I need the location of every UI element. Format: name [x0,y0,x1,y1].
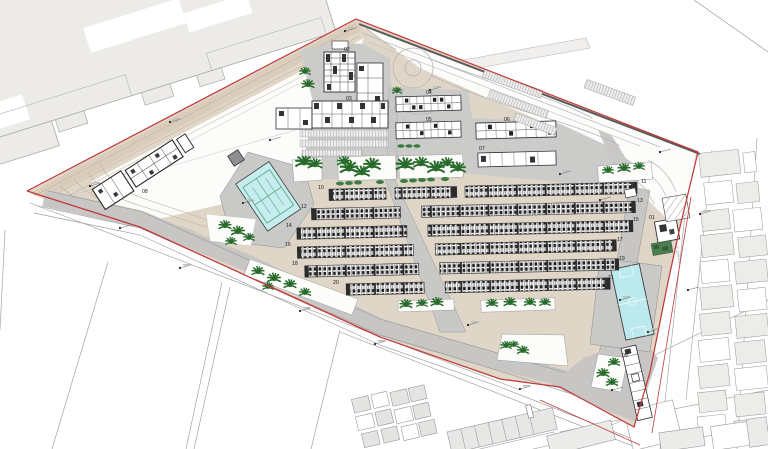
svg-text:12: 12 [301,204,307,210]
svg-text:10: 10 [318,185,324,191]
svg-text:21: 21 [608,275,614,281]
svg-text:14: 14 [286,223,292,229]
svg-text:07: 07 [479,146,485,152]
svg-text:01: 01 [649,215,655,221]
svg-text:18: 18 [292,261,298,267]
svg-text:03: 03 [346,96,352,102]
svg-text:06: 06 [504,117,510,123]
svg-text:04: 04 [426,90,432,96]
svg-text:09: 09 [622,353,628,359]
svg-text:16: 16 [285,242,291,248]
svg-text:05: 05 [426,117,432,123]
svg-text:19: 19 [619,256,625,262]
svg-text:13: 13 [637,198,643,204]
svg-text:20: 20 [333,280,339,286]
svg-text:17: 17 [617,237,623,243]
svg-text:08: 08 [142,189,148,195]
svg-text:15: 15 [633,217,639,223]
svg-text:11: 11 [641,179,646,185]
svg-text:02: 02 [344,47,350,53]
